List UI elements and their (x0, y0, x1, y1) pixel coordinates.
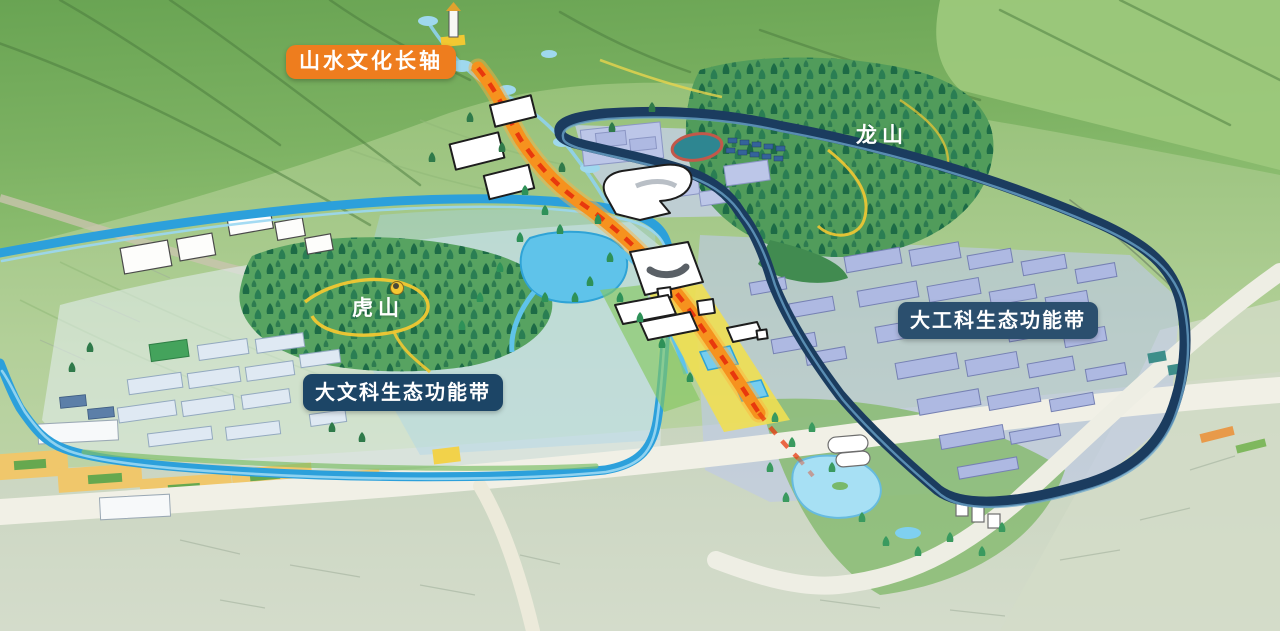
masterplan-map: 山水文化长轴 龙山 虎山 大工科生态功能带 大文科生态功能带 (0, 0, 1280, 631)
longshan-label: 龙山 (856, 119, 908, 149)
hushan-label: 虎山 (352, 292, 404, 322)
engineering-belt-badge: 大工科生态功能带 (898, 302, 1098, 339)
swan-pond (895, 527, 921, 539)
cultural-axis-badge: 山水文化长轴 (286, 45, 456, 79)
liberal-arts-belt-badge: 大文科生态功能带 (303, 374, 503, 411)
